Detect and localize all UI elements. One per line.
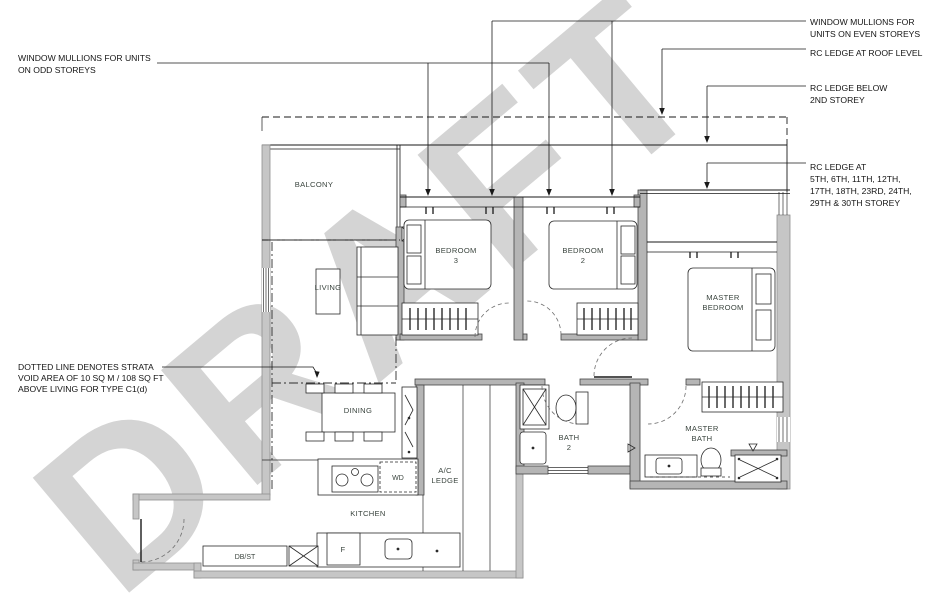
living-label: LIVING	[315, 283, 342, 292]
rc-storeys-note-line3: 17TH, 18TH, 23RD, 24TH,	[810, 186, 912, 196]
master-bath-label: MASTER	[685, 424, 719, 433]
riser-duct	[402, 387, 417, 458]
wall-bed3-bed2	[514, 197, 523, 340]
wall-shaft-right	[516, 470, 523, 578]
fridge-label: F	[341, 545, 346, 554]
even-mullions-note-line2: UNITS ON EVEN STOREYS	[810, 29, 920, 39]
master-bedroom-label-line2: BEDROOM	[702, 303, 743, 312]
bedroom2-label-num: 2	[581, 256, 586, 265]
bath2-shower	[520, 385, 549, 429]
bed3-pillow	[407, 225, 421, 253]
wall-bed2-master	[638, 190, 647, 340]
dining-chair	[364, 432, 382, 441]
kitchen-label: KITCHEN	[350, 509, 385, 518]
bath2-window	[548, 468, 588, 474]
bedroom3-label-num: 3	[454, 256, 459, 265]
floor-plan-drawing: DRAFT	[0, 0, 950, 609]
odd-mullions-note-line2: ON ODD STOREYS	[18, 65, 96, 75]
dbst-label: DB/ST	[235, 554, 256, 561]
wall-bath2-bottom-l	[516, 466, 548, 474]
wall-bed2-bottom-l	[523, 334, 527, 340]
wall-right	[777, 215, 790, 489]
rc-storeys-note-line4: 29TH & 30TH STOREY	[810, 198, 900, 208]
rc-below-2nd-note-line2: 2ND STOREY	[810, 95, 865, 105]
wall-entry-left-upper	[133, 494, 139, 519]
wall-entry-top	[133, 494, 270, 500]
bath2-wc	[556, 392, 588, 424]
dining-chair	[306, 432, 324, 441]
sofa	[357, 247, 398, 335]
crossed-box-icon	[289, 546, 318, 566]
wall-bottom	[194, 571, 523, 578]
wall-left	[262, 145, 270, 495]
floor-plan-page: DRAFT	[0, 0, 950, 609]
wd-label: WD	[392, 475, 404, 482]
ac-ledge-label: A/C	[438, 466, 452, 475]
master-bed-pillow	[756, 310, 771, 340]
balcony-label: BALCONY	[295, 180, 333, 189]
bed3-pillow	[407, 256, 421, 284]
bedroom2-label: BEDROOM	[562, 246, 603, 255]
strata-void-note-line2: VOID AREA OF 10 SQ M / 108 SQ FT	[18, 373, 164, 383]
rc-below-2nd-note: RC LEDGE BELOW	[810, 83, 888, 93]
master-bedroom-label: MASTER	[706, 293, 740, 302]
master-bed-pillow	[756, 274, 771, 304]
bath2-label-num: 2	[567, 443, 572, 452]
strata-void-note: DOTTED LINE DENOTES STRATA	[18, 362, 154, 372]
bed2-pillow	[621, 256, 635, 284]
wardrobe-mbath	[702, 382, 783, 412]
mbath-door-arc	[648, 386, 686, 424]
dining-label: DINING	[344, 406, 372, 415]
wardrobe-bed3	[402, 303, 478, 335]
odd-mullions-note: WINDOW MULLIONS FOR UNITS	[18, 53, 151, 63]
rc-storeys-note: RC LEDGE AT	[810, 162, 867, 172]
even-mullions-note: WINDOW MULLIONS FOR	[810, 17, 915, 27]
bedroom3-label: BEDROOM	[435, 246, 476, 255]
bed2-pillow	[621, 226, 635, 254]
master-bath-label-line2: BATH	[692, 434, 713, 443]
rc-storeys-note-line2: 5TH, 6TH, 11TH, 12TH,	[810, 174, 901, 184]
dining-chair	[335, 432, 353, 441]
wall-corridor-3	[686, 379, 700, 385]
mbath-shower	[735, 455, 781, 482]
wall-bath2-mbath	[630, 383, 640, 488]
mbath-wc	[701, 448, 721, 476]
dining-chair	[364, 384, 382, 393]
ac-ledge-label-line2: LEDGE	[431, 476, 458, 485]
strata-void-note-line3: ABOVE LIVING FOR TYPE C1(d)	[18, 384, 147, 394]
wall-corridor-1	[415, 379, 545, 385]
dining-chair	[306, 384, 324, 393]
wall-entry-bottom	[133, 563, 201, 570]
bath2-label: BATH	[559, 433, 580, 442]
wardrobe-bed2	[577, 303, 638, 335]
master-bedroom-door-arc	[594, 338, 632, 376]
rc-roof-note: RC LEDGE AT ROOF LEVEL	[810, 48, 923, 58]
dining-chair	[335, 384, 353, 393]
